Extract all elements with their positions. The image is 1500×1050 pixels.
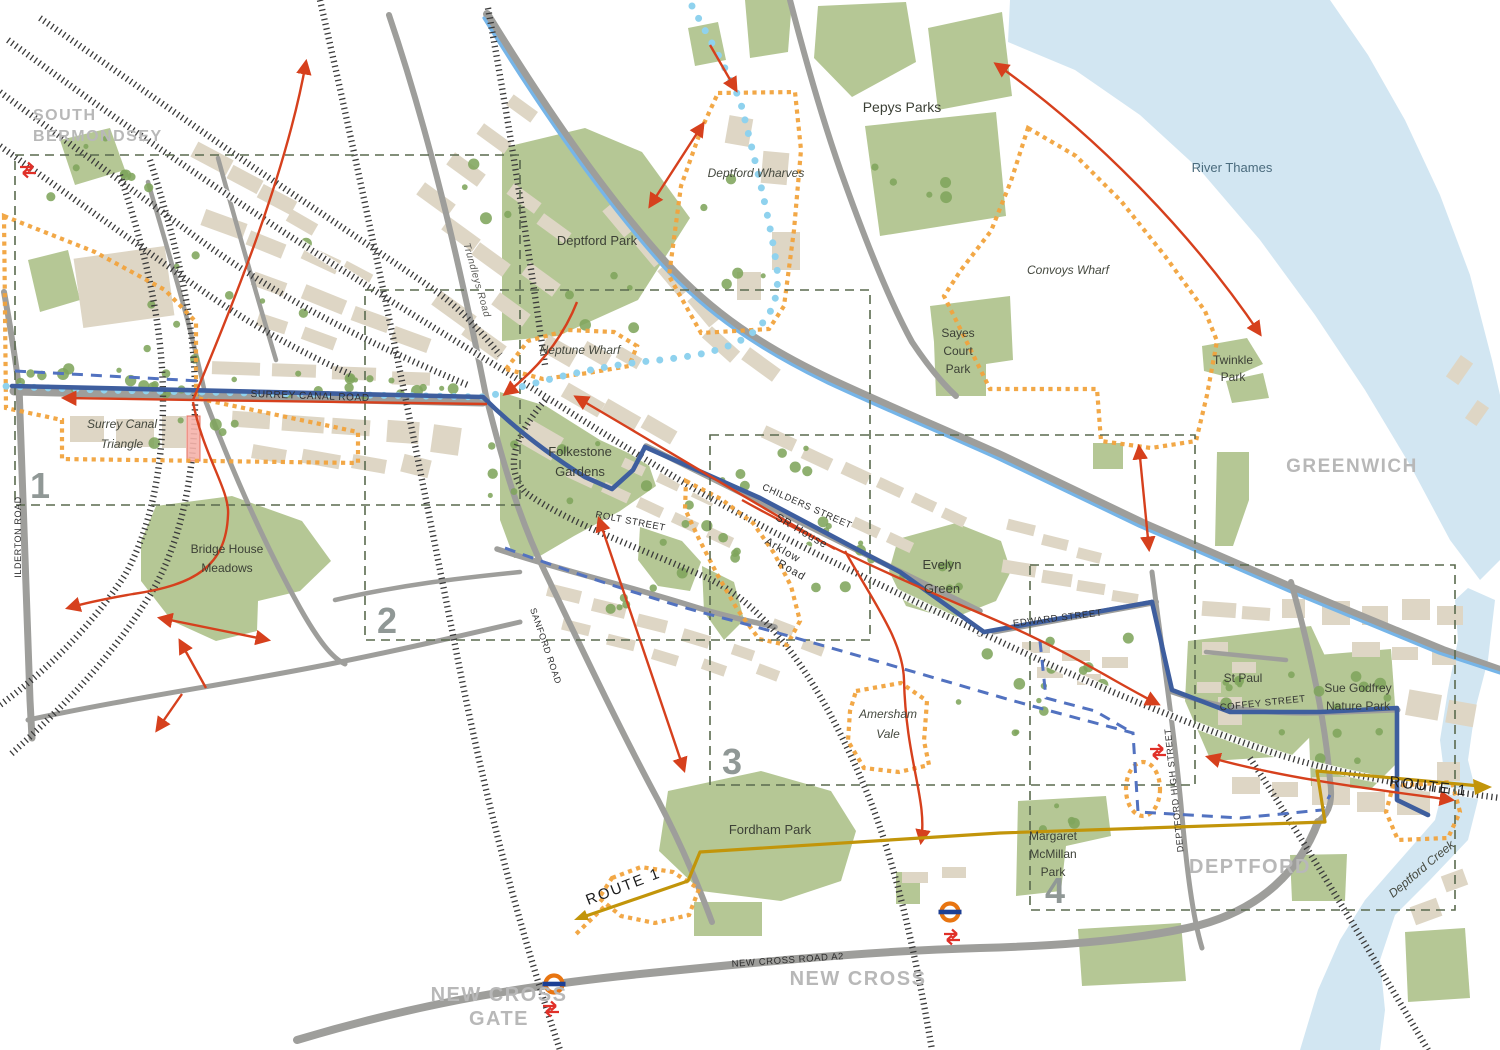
tree [890,178,897,185]
pepys-park-area [928,12,1012,110]
building [1006,519,1036,536]
label-bridge-house-2: Meadows [201,561,252,575]
tree [511,488,518,495]
tree [1036,698,1041,703]
building [1445,700,1477,728]
building [446,152,486,186]
label-sue-godfrey-2: Nature Park [1326,699,1391,713]
tree [735,469,745,479]
building [1357,792,1385,812]
area-number-3: 3 [722,741,742,782]
tree [1014,678,1026,690]
building [1041,534,1069,551]
tree [468,158,479,169]
pepys-park-area [814,2,916,97]
building [1437,762,1460,781]
tree [1054,803,1059,808]
building [701,658,727,676]
park-area [1093,443,1123,469]
water-layer [1008,0,1500,1050]
tree [488,442,495,449]
area-number-2: 2 [377,600,397,641]
tree [940,191,952,203]
park-area [1405,928,1470,1002]
building [851,517,881,539]
tree [956,699,962,705]
tree [790,461,801,472]
tree [504,211,511,218]
building [636,497,664,518]
label-mcmillan-2: McMillan [1029,847,1076,861]
map-svg: 1234 SOUTHBERMONDSEYGREENWICHDEPTFORDNEW… [0,0,1500,1050]
tree [777,448,786,457]
label-surrey-canal-triangle-1: Surrey Canal [87,417,157,431]
building [391,326,432,353]
park-area [702,566,744,640]
building [351,454,387,474]
building [841,462,872,486]
tree [26,369,35,378]
building [1076,580,1105,595]
label-twinkle-1: Twinkle [1213,353,1253,367]
site-boundary [1126,762,1160,816]
label-greenwich: GREENWICH [1286,456,1418,477]
tree [616,604,622,610]
park-area [638,527,701,591]
national-rail-icon [944,930,960,945]
building [1352,642,1380,657]
label-evelyn-green-1: Evelyn [922,557,961,572]
tree [419,384,426,391]
building [1410,898,1443,925]
tree [344,383,353,392]
tree [761,273,766,278]
building [1076,547,1102,563]
label-st-paul: St Paul [1224,671,1263,685]
label-deptford-wharves: Deptford Wharves [708,166,805,180]
tree [73,164,80,171]
tree [439,386,444,391]
building [651,648,679,666]
building [606,634,636,651]
tree [210,419,222,431]
tree [732,268,743,279]
tree [811,583,821,593]
label-sayes-court-2: Court [943,344,973,358]
building [74,246,175,328]
tree [192,251,200,259]
building [301,327,337,351]
label-mcmillan-1: Margaret [1029,829,1078,843]
tree [295,371,301,377]
tree [448,383,459,394]
building [636,614,668,634]
tree [299,308,308,317]
label-folkestone-2: Gardens [555,464,605,479]
building [1402,599,1430,620]
tree [730,553,740,563]
tree [660,539,667,546]
label-river-thames: River Thames [1192,160,1273,175]
tree [802,466,812,476]
tree [231,420,239,428]
tree [1279,729,1285,735]
building [1102,657,1128,668]
tree [462,184,468,190]
tree [1014,730,1019,735]
road [28,622,520,720]
label-new-cross-gate-1: NEW CROSS [431,984,568,1006]
label-evelyn-green-2: Green [924,581,960,596]
tree [871,163,878,170]
label-south-bermondsey-1: SOUTH [33,107,97,124]
label-bridge-house-1: Bridge House [191,542,264,556]
red-route [180,641,206,688]
tree [260,298,265,303]
label-amersham-vale-1: Amersham [858,707,917,721]
label-south-bermondsey-2: BERMONDSEY [33,128,163,145]
building [1392,647,1418,660]
tree [1288,671,1295,678]
overground-icon [939,902,962,923]
building [416,182,456,216]
label-deptford-park: Deptford Park [557,233,638,248]
park-area [28,250,80,312]
tree [1314,686,1325,697]
park-area [1215,452,1249,546]
label-sayes-court-3: Park [946,362,972,376]
tree [610,272,618,280]
park-area [745,0,792,58]
label-twinkle-2: Park [1221,370,1247,384]
building [301,284,347,314]
tree [926,192,932,198]
label-convoys-wharf: Convoys Wharf [1027,263,1111,277]
label-amersham-vale-2: Vale [876,727,900,741]
red-route [650,124,703,206]
building [761,425,797,451]
tree [721,279,731,289]
tree [480,212,492,224]
building [257,184,298,215]
tree [982,648,993,659]
tree [700,204,707,211]
building [1405,689,1442,720]
label-surrey-canal-triangle-2: Triangle [101,437,144,451]
tree [840,581,851,592]
label-mcmillan-3: Park [1041,865,1067,879]
tree [718,533,728,543]
building [772,232,800,270]
tree [1123,633,1134,644]
tree [566,497,573,504]
tree [366,375,373,382]
building [1041,570,1073,588]
building [902,872,928,883]
building [351,306,392,333]
tree [219,428,227,436]
tree [803,446,808,451]
tree [225,291,234,300]
building [506,94,538,122]
building [430,424,462,456]
tree [173,321,180,328]
label-edward-street: EDWARD STREET [1012,608,1102,630]
tree [641,480,652,491]
building [392,371,430,385]
label-ilderton-road: ILDERTON ROAD [13,496,23,577]
building [272,363,316,378]
masterplan-map: 1234 SOUTHBERMONDSEYGREENWICHDEPTFORDNEW… [0,0,1500,1050]
building [1197,682,1221,693]
route-1-arrowhead [574,910,589,920]
red-route [157,694,182,730]
tree [1354,757,1361,764]
building [1437,606,1463,625]
red-route [1139,447,1149,549]
road [335,572,520,600]
tree [231,377,237,383]
tree [178,417,184,423]
label-pepys-parks: Pepys Parks [863,99,942,115]
tree [650,584,657,591]
label-sue-godfrey-1: Sue Godfrey [1324,681,1391,695]
tree [388,378,394,384]
pepys-park-area [865,112,1006,236]
building [212,361,260,376]
building [301,449,341,469]
building [731,644,755,662]
tree [488,493,493,498]
label-fordham-park: Fordham Park [729,822,812,837]
building [286,209,318,235]
building [1242,606,1271,621]
tree [1333,729,1342,738]
tree [143,345,150,352]
label-new-cross: NEW CROSS [790,968,927,990]
label-new-cross-gate-2: GATE [469,1008,529,1030]
tree [628,322,639,333]
building [911,492,937,512]
tree [940,177,951,188]
building [756,663,780,681]
area-number-1: 1 [30,465,50,506]
tree [858,541,863,546]
label-neptune-wharf: Neptune Wharf [540,343,622,357]
label-sayes-court-1: Sayes [941,326,974,340]
tree [565,290,574,299]
label-sanford-road: SANFORD ROAD [528,607,563,686]
building [226,165,263,194]
building [942,867,966,878]
tree [488,469,498,479]
tree [1069,818,1080,829]
tree [1375,728,1383,736]
building [1202,601,1237,618]
building [641,415,678,445]
tree [681,520,689,528]
building [1272,782,1298,797]
building [1232,777,1260,794]
tree [116,368,121,373]
building [1111,590,1138,605]
tree [606,604,616,614]
building [681,628,712,649]
tree [346,374,354,382]
building [876,477,904,498]
label-folkestone-1: Folkestone [548,444,612,459]
tree [144,183,153,192]
label-deptford: DEPTFORD [1189,856,1311,878]
tree [46,192,55,201]
